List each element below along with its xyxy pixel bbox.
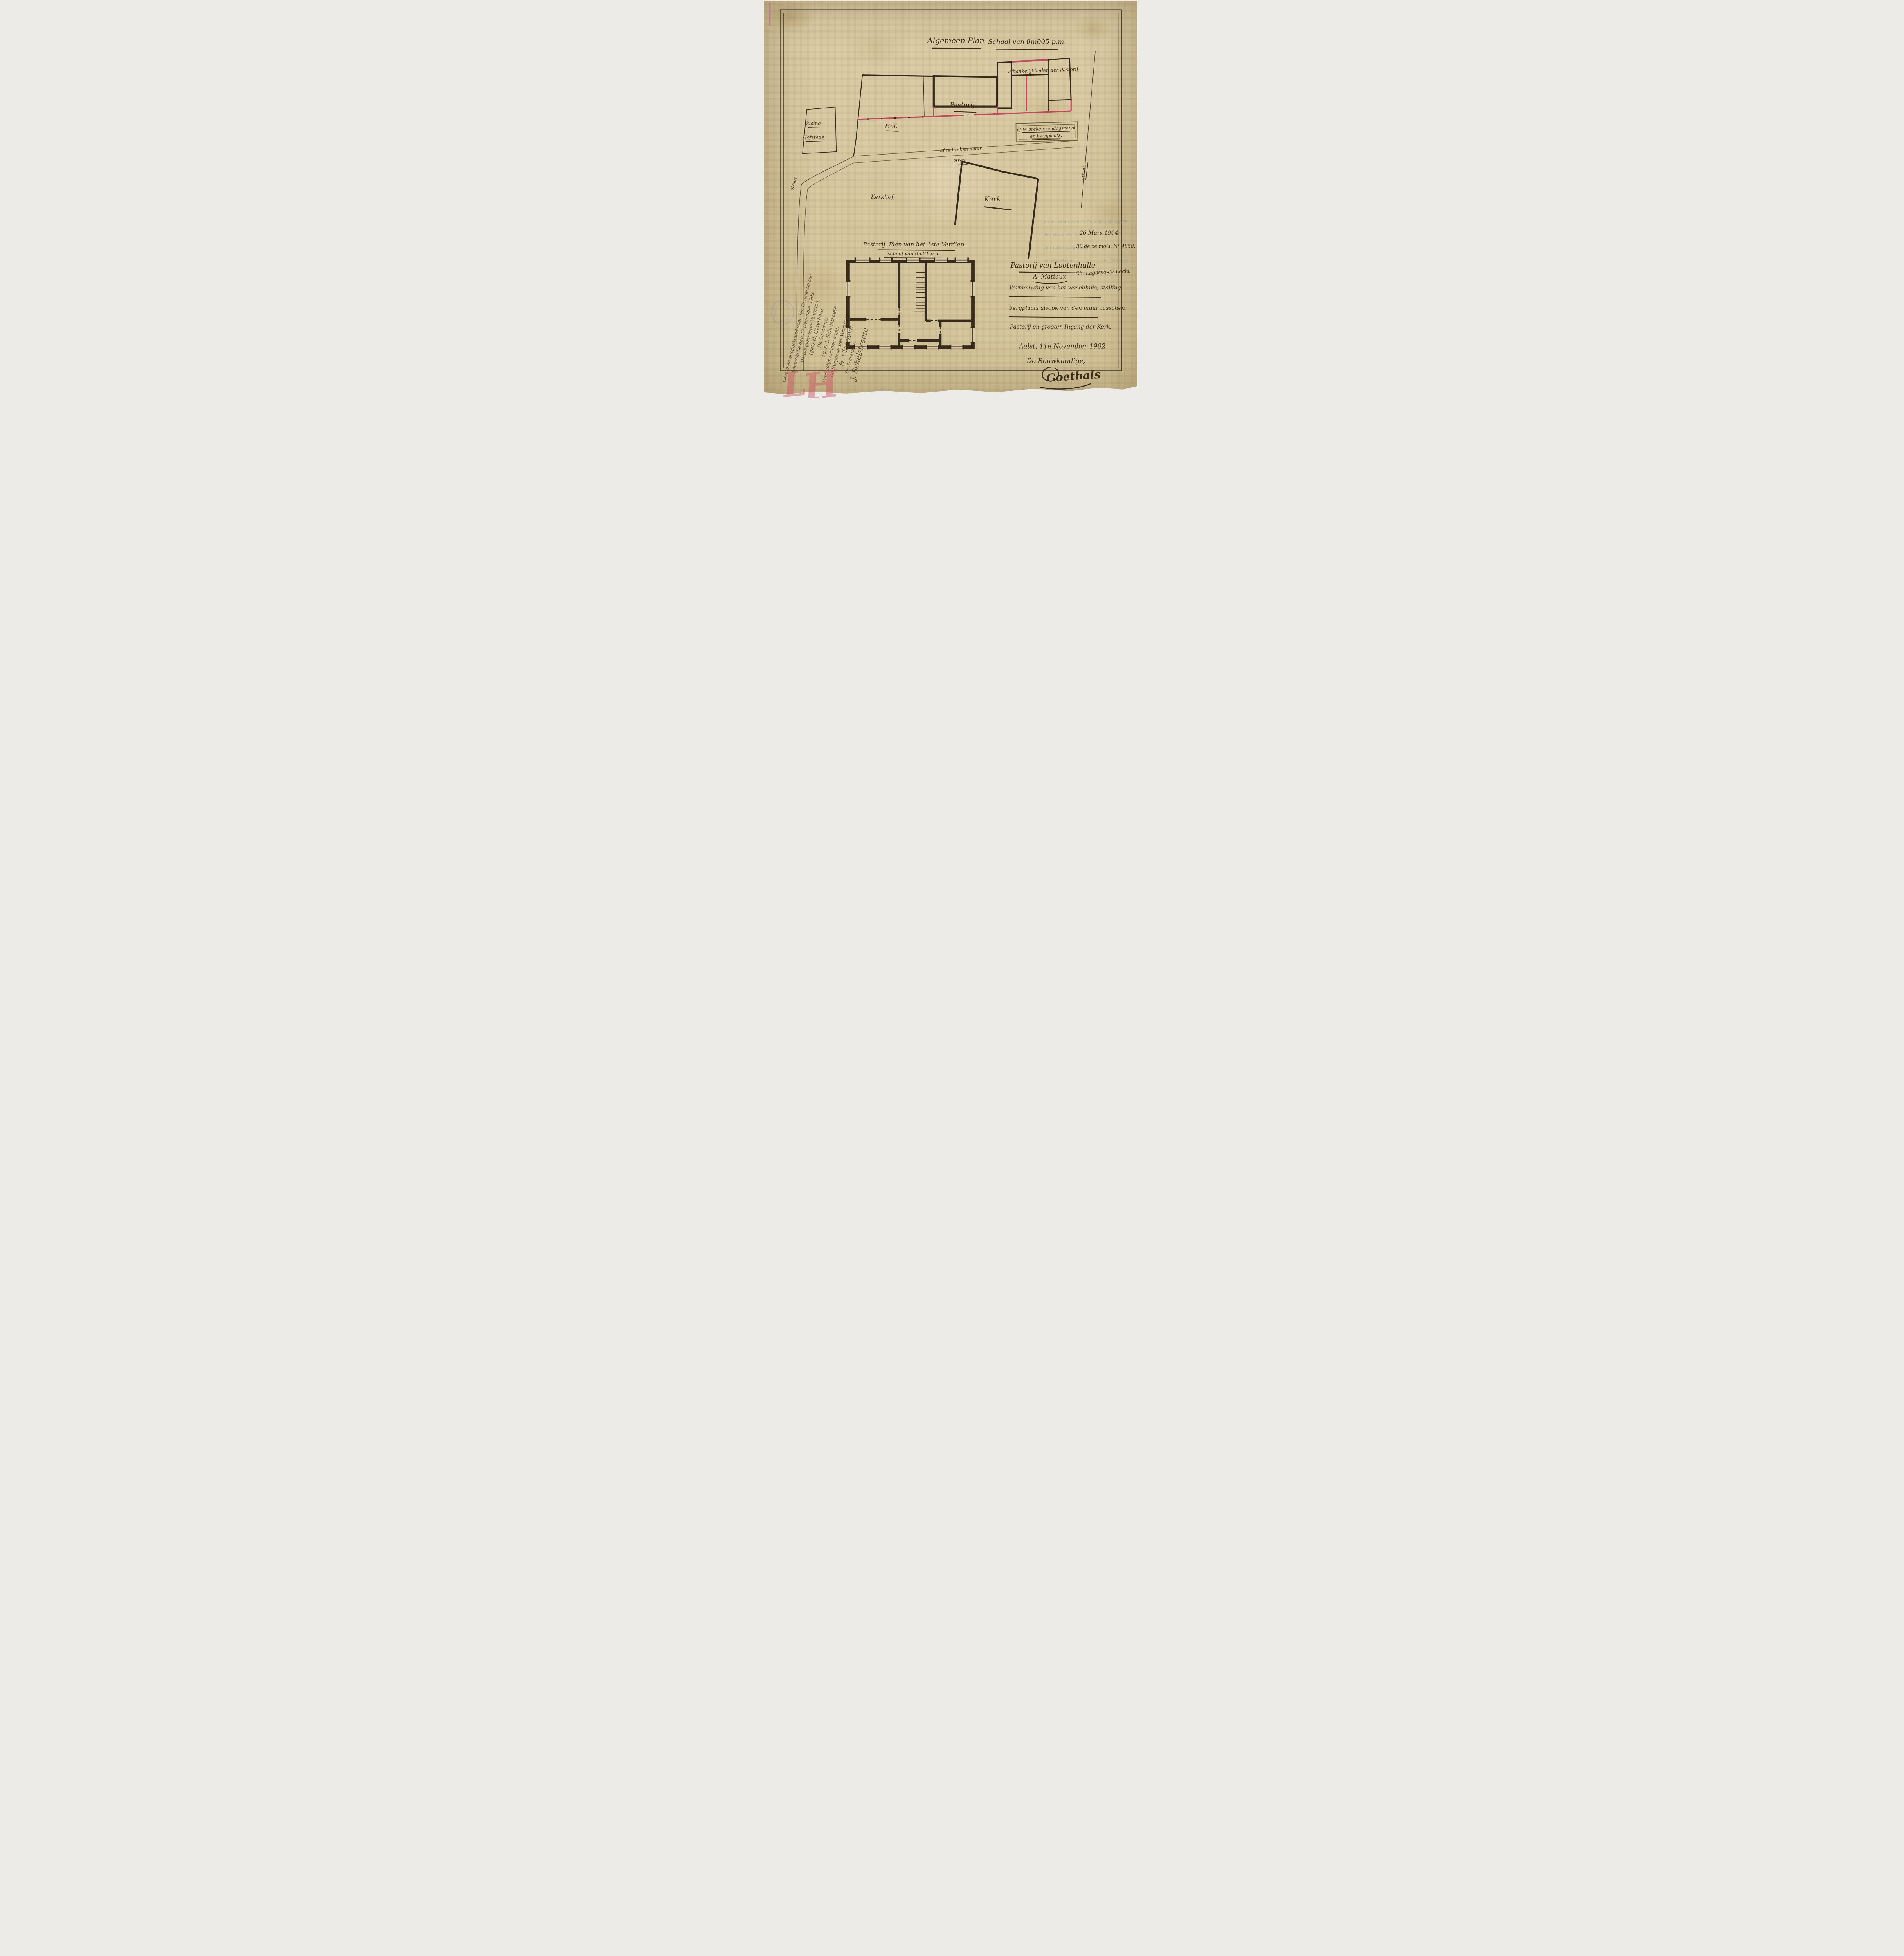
street-bottom-underline [954,164,967,164]
kleine-underline [808,128,820,128]
secretary-signature-flourish [1032,281,1067,283]
window [854,257,870,262]
stamp-line-1: Vu en séance de la Commission royale [1043,220,1128,224]
kerk-label: Kerk [984,195,1001,203]
window [950,345,963,349]
pastorij-label: Pastorij [949,101,974,109]
dependencies-label: afhankelijkheden der Pastorij [1008,67,1078,74]
kleine-hofstede-outline [802,107,836,154]
kerk-top-wall [962,162,1038,179]
project-line-2: Vernieuwing van het waschhuis, stalling [1009,285,1121,291]
project-line-1: Pastorij van Lootenhulle [1010,262,1095,270]
site-plan: Hof. Pastorij afhankelijkheden der Pasto… [789,51,1095,370]
window [906,257,920,262]
kerk-right-wall [1028,179,1038,259]
stamp-date-handwritten: 26 Mars 1904. [1079,230,1119,236]
faint-round-stamp-inner [775,304,790,321]
kerkhof-label: Kerkhof. [870,194,895,200]
property-left-boundary [853,75,862,156]
property-topright-wall [1048,58,1071,101]
place-date: Aalst, 11e November 1902 [1018,342,1106,350]
general-plan-title: Algemeen Plan [926,36,984,45]
small-room-top-line [1049,100,1071,101]
signoff-block: Aalst, 11e November 1902 De Bouwkundige,… [1018,342,1106,389]
general-plan-title-underline [932,48,981,49]
hof-underline [886,131,898,131]
hofstede-underline [805,141,821,142]
window [878,345,891,349]
window [846,280,850,297]
window [879,257,893,262]
general-plan-scale-underline [995,49,1058,49]
floor-plan-title: Pastorij. Plan van het 1ste Verdiep. [862,241,966,248]
kleine-label: kleine [806,121,821,126]
parcel-divider-line [923,76,924,117]
window [970,280,975,297]
window [925,345,939,349]
demolish-wall-label: af te breken muur [940,146,982,153]
staircase [913,272,925,311]
school-label-2: en bergplaats. [1030,133,1062,139]
stamp-president-label: Le Président [1101,258,1128,262]
commission-stamp: Vu en séance de la Commission royale des… [1032,220,1135,284]
stamp-report-handwritten: 30 de ce mois, N° 4868. [1076,243,1135,249]
scanned-drawing-page: Algemeen Plan Schaal van 0m005 p.m. [762,0,1143,398]
hof-label: Hof. [884,122,897,129]
general-plan-scale: Schaal van 0m005 p.m. [988,38,1066,46]
street-left-label: straat [789,176,798,191]
window [954,257,968,262]
window [970,327,975,343]
architect-role: De Bouwkundige, [1026,357,1085,365]
drawing-canvas: Algemeen Plan Schaal van 0m005 p.m. [762,0,1143,398]
street-bottom-label: straat [954,157,967,163]
new-wall-long-right-red [974,111,1071,115]
header: Algemeen Plan Schaal van 0m005 p.m. [926,36,1066,49]
kerk-underline [984,207,1011,210]
floor-plan-scale: schaal van 0m01 p.m. [887,250,941,256]
project-underline-3 [1009,317,1098,318]
project-line-4: Pastorij en grooten Ingang der Kerk. [1009,324,1111,330]
pastorij-underline [954,111,976,112]
floor-plan-title-underline [878,250,955,250]
window [901,345,915,349]
window [934,257,948,262]
project-underline-2 [1009,297,1101,297]
project-line-3: bergplaats alsook van den muur tusschen [1009,305,1125,311]
hofstede-label: Hofstede [802,135,824,140]
architect-signature: Goethals [1046,368,1101,385]
secretary-signature: A. Mattaux [1032,273,1066,280]
right-street-line [1081,51,1095,208]
kerk-left-wall [955,162,962,225]
dependencies-inner-wall [1011,74,1049,75]
stamp-line-2: des Monuments [1043,233,1077,237]
wall-gap-dashed [961,115,974,115]
new-wall-top-red [1012,60,1048,62]
school-underline-2 [1032,139,1060,140]
floorplan-door-openings [866,308,940,340]
